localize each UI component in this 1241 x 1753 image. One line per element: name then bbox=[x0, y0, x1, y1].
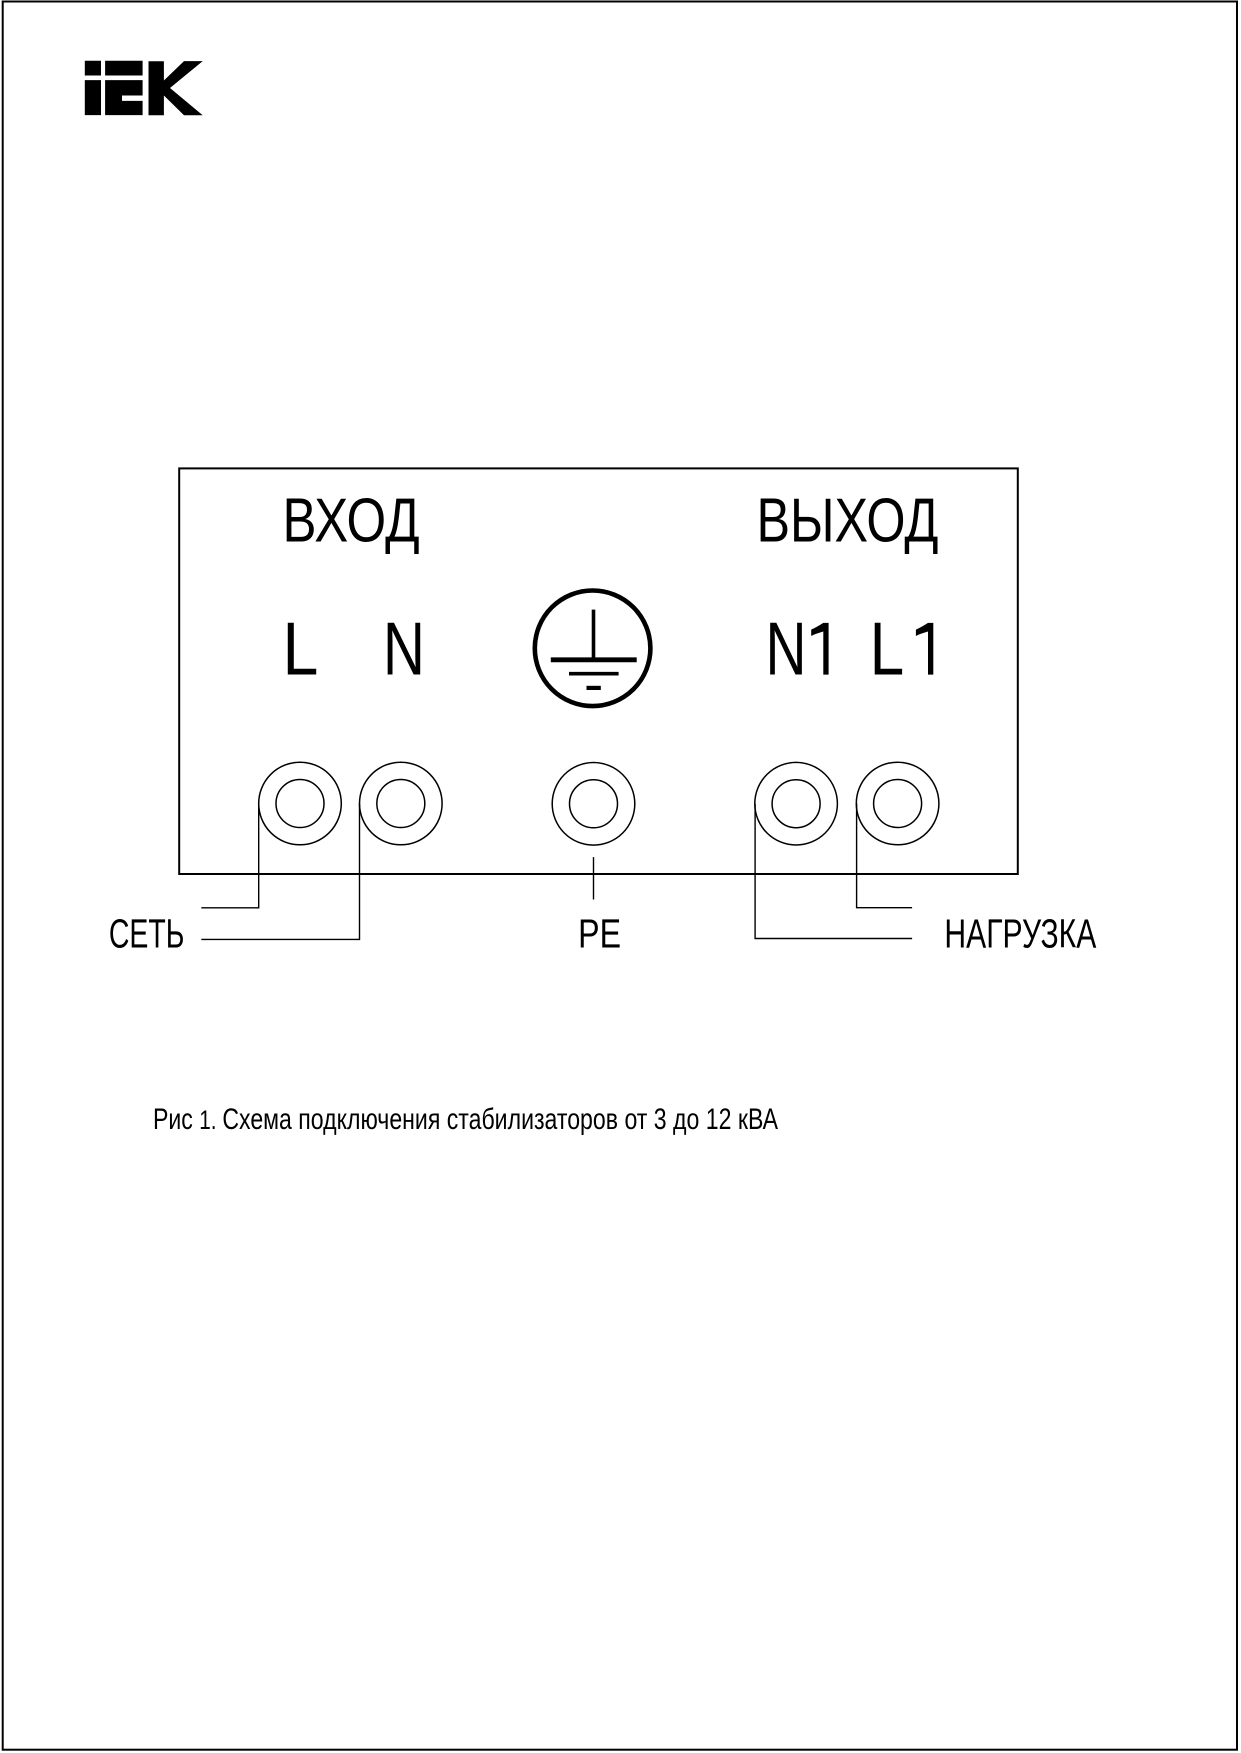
svg-text:PE: PE bbox=[578, 911, 621, 957]
svg-text:НАГРУЗКА: НАГРУЗКА bbox=[944, 910, 1096, 957]
svg-text:Рис 1. Схема подключения стаби: Рис 1. Схема подключения стабилизаторов … bbox=[153, 1102, 778, 1136]
svg-text:N: N bbox=[383, 607, 425, 691]
svg-text:СЕТЬ: СЕТЬ bbox=[109, 912, 185, 957]
svg-text:ВЫХОД: ВЫХОД bbox=[756, 486, 938, 555]
svg-text:ВХОД: ВХОД bbox=[282, 487, 419, 556]
svg-text:L: L bbox=[870, 607, 905, 691]
svg-text:L: L bbox=[283, 607, 319, 691]
svg-text:N: N bbox=[765, 608, 806, 691]
